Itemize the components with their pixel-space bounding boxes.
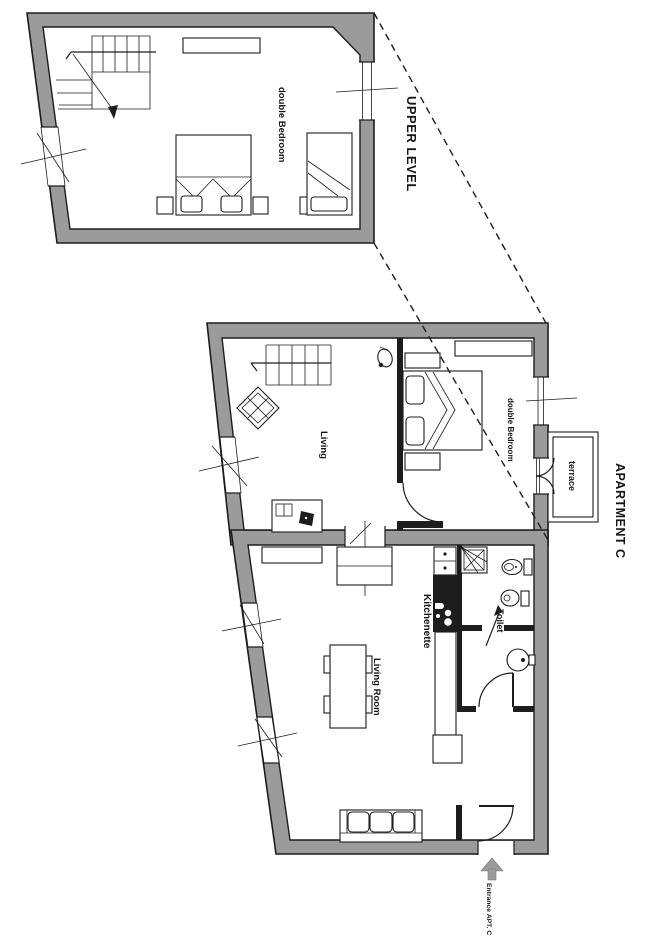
upper-closet <box>183 38 260 53</box>
main-double-bed <box>403 371 482 450</box>
sofa <box>340 810 422 842</box>
main-bedroom-label: double Bedroom <box>506 398 515 462</box>
sideboard <box>262 547 322 563</box>
pillow <box>406 376 424 404</box>
pillow <box>221 196 242 212</box>
apartment-label: APARTMENT C <box>613 463 627 559</box>
mid-room-floor <box>222 338 534 530</box>
upper-bedroom-label: double Bedroom <box>276 87 287 162</box>
nightstand <box>405 453 440 470</box>
desk <box>272 500 322 532</box>
toilet-wall <box>457 706 476 712</box>
shower <box>461 547 487 573</box>
nightstand <box>405 353 440 368</box>
living-room-label: Living Room <box>371 658 382 716</box>
mid-right-window <box>526 377 577 425</box>
living-label: Living <box>318 431 329 459</box>
kitchenette-label: Kitchenette <box>421 594 432 649</box>
floor-plan-canvas: double Bedroom UPPER LEVEL terrace <box>0 0 656 940</box>
nightstand <box>157 197 173 214</box>
sofa-cushion <box>348 812 369 832</box>
toilet-wall <box>513 706 534 712</box>
chair <box>324 696 330 713</box>
wc-toilet <box>502 559 532 575</box>
terrace: terrace <box>548 432 598 522</box>
sofa-cushion <box>393 812 414 832</box>
bidet <box>501 590 529 606</box>
stove <box>433 575 457 600</box>
entrance-arrow <box>481 858 503 880</box>
entrance-label: Entrance APT. C <box>485 883 492 935</box>
bedroom-wall-stub <box>397 521 403 530</box>
dining-table <box>324 645 372 728</box>
main-level-plan: terrace <box>199 323 598 855</box>
toilet-label: Toilet <box>495 609 505 632</box>
floor-plan-page: double Bedroom UPPER LEVEL terrace <box>0 0 656 940</box>
pillow <box>181 196 202 212</box>
terrace-label: terrace <box>567 461 577 491</box>
toilet-wall <box>462 625 482 631</box>
chair <box>324 656 330 673</box>
nightstand <box>253 197 268 214</box>
toilet-wall <box>504 625 534 631</box>
pillow <box>406 417 424 445</box>
upper-level-plan: double Bedroom <box>21 13 398 243</box>
bedroom-partition-wall <box>397 338 403 483</box>
upper-level-label: UPPER LEVEL <box>404 96 419 192</box>
fireplace-cabinet <box>337 547 392 585</box>
upper-double-bed <box>176 135 251 215</box>
pillow <box>311 197 347 211</box>
bedroom-closet <box>455 341 532 356</box>
lower-room-floor <box>248 545 534 840</box>
sofa-cushion <box>370 812 392 832</box>
upper-single-bed <box>307 133 352 215</box>
entrance-wall-stub <box>456 805 462 840</box>
